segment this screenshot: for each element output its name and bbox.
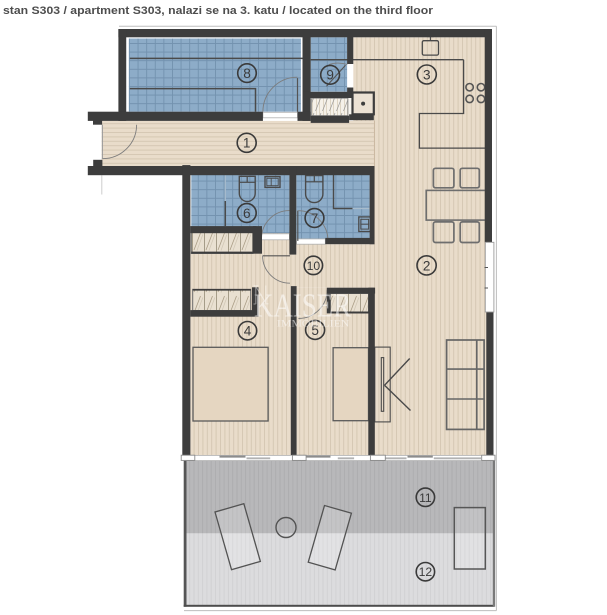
- svg-text:IMMOBILIEN: IMMOBILIEN: [277, 318, 350, 328]
- svg-text:4: 4: [244, 324, 252, 339]
- svg-text:11: 11: [419, 491, 432, 505]
- svg-text:12: 12: [419, 565, 433, 579]
- svg-text:6: 6: [243, 206, 251, 221]
- svg-text:stan S303 / apartment S303, na: stan S303 / apartment S303, nalazi se na…: [3, 5, 434, 17]
- svg-text:7: 7: [311, 211, 319, 226]
- svg-text:1: 1: [243, 136, 251, 151]
- svg-text:2: 2: [423, 258, 431, 273]
- svg-text:8: 8: [243, 66, 251, 81]
- svg-text:10: 10: [307, 259, 321, 273]
- svg-text:9: 9: [326, 68, 334, 83]
- svg-text:3: 3: [423, 67, 431, 82]
